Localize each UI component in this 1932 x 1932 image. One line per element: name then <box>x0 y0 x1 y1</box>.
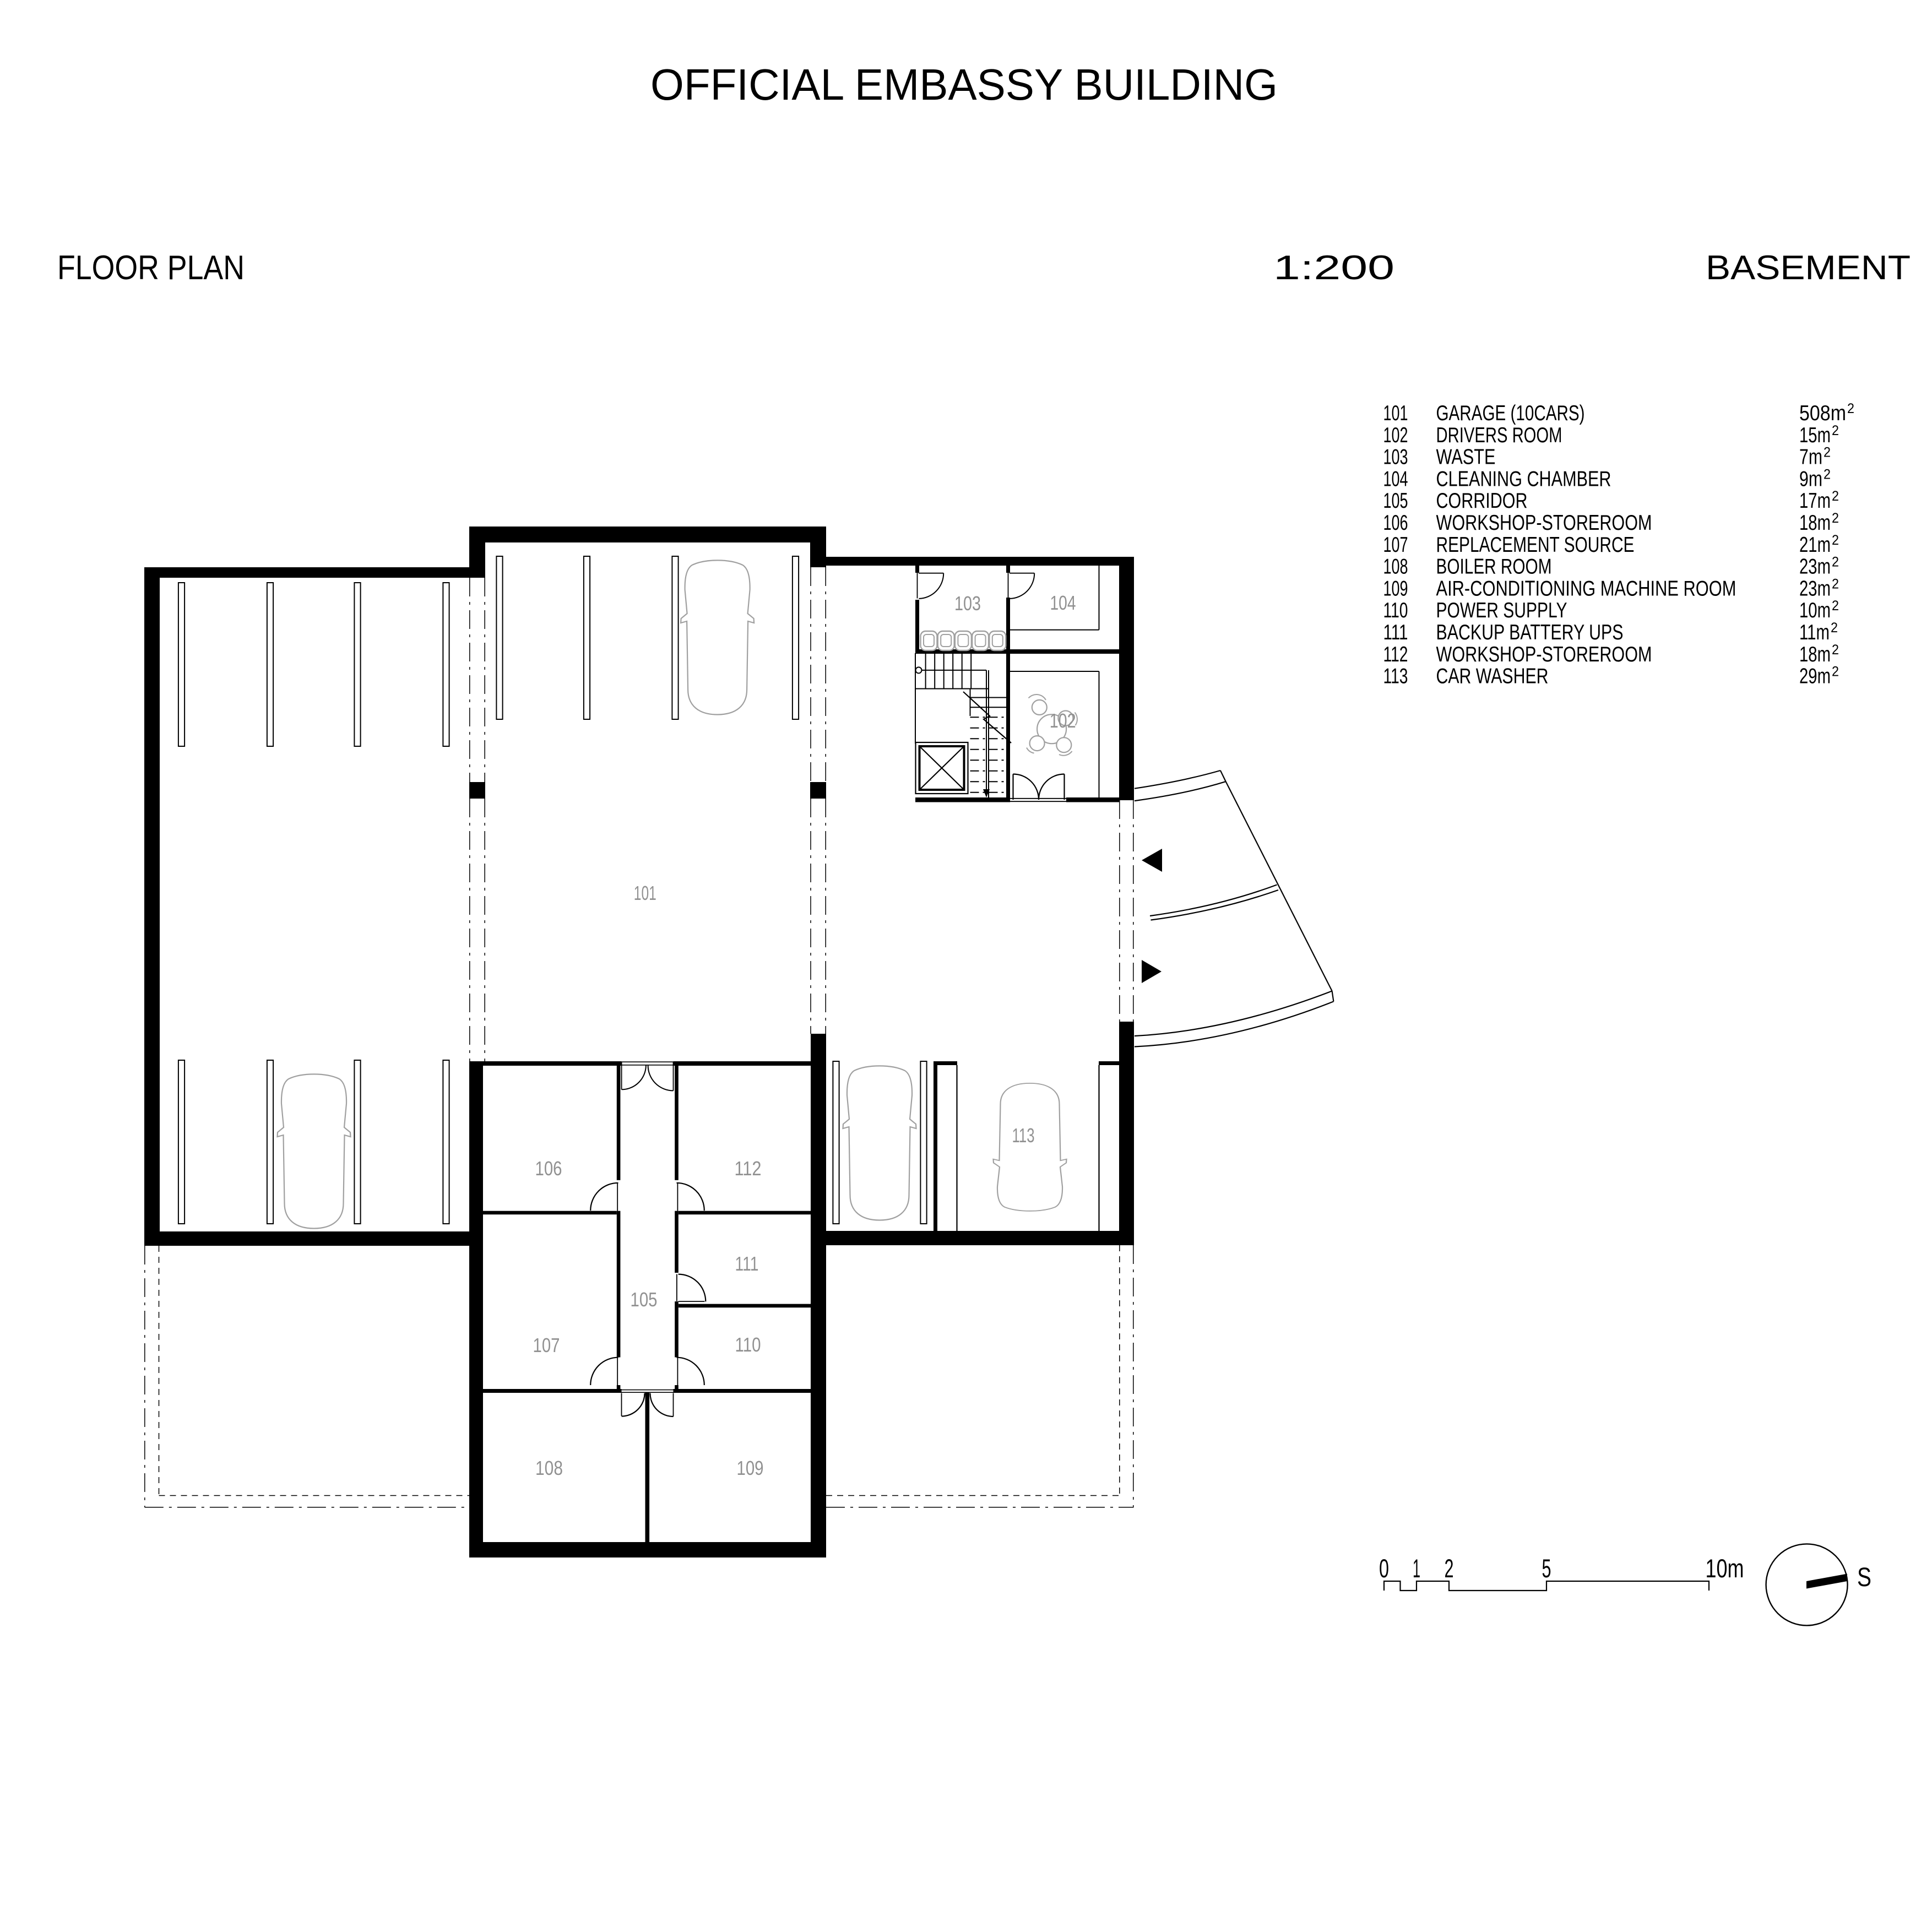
svg-text:111: 111 <box>735 1252 759 1275</box>
svg-text:DRIVERS ROOM: DRIVERS ROOM <box>1436 424 1562 447</box>
svg-text:18m: 18m <box>1799 643 1831 666</box>
svg-text:113: 113 <box>1383 665 1408 688</box>
svg-text:106: 106 <box>535 1157 562 1180</box>
svg-text:108: 108 <box>1383 555 1408 579</box>
svg-text:106: 106 <box>1383 511 1408 535</box>
svg-text:2: 2 <box>1832 664 1839 680</box>
svg-text:2: 2 <box>1832 642 1839 658</box>
svg-text:103: 103 <box>954 592 981 615</box>
svg-text:CAR WASHER: CAR WASHER <box>1436 665 1549 688</box>
svg-text:REPLACEMENT SOURCE: REPLACEMENT SOURCE <box>1436 533 1635 557</box>
svg-text:508m: 508m <box>1799 401 1846 425</box>
svg-text:23m: 23m <box>1799 555 1831 579</box>
svg-text:17m: 17m <box>1799 489 1831 513</box>
svg-text:2: 2 <box>1847 401 1854 416</box>
svg-text:105: 105 <box>631 1288 658 1311</box>
svg-text:101: 101 <box>634 882 656 904</box>
svg-text:BASEMENT: BASEMENT <box>1706 249 1911 287</box>
svg-text:1: 1 <box>1413 1554 1420 1583</box>
svg-text:OFFICIAL EMBASSY BUILDING: OFFICIAL EMBASSY BUILDING <box>650 60 1278 109</box>
svg-text:S: S <box>1857 1563 1871 1592</box>
svg-text:2: 2 <box>1445 1554 1454 1583</box>
svg-text:9m: 9m <box>1799 467 1822 491</box>
svg-text:CORRIDOR: CORRIDOR <box>1436 489 1528 513</box>
svg-text:BACKUP BATTERY UPS: BACKUP BATTERY UPS <box>1436 621 1624 644</box>
svg-text:2: 2 <box>1832 511 1839 526</box>
svg-text:102: 102 <box>1383 424 1408 447</box>
svg-text:BOILER ROOM: BOILER ROOM <box>1436 555 1552 579</box>
svg-text:WORKSHOP-STOREROOM: WORKSHOP-STOREROOM <box>1436 643 1652 666</box>
svg-text:CLEANING CHAMBER: CLEANING CHAMBER <box>1436 467 1611 491</box>
svg-text:15m: 15m <box>1799 424 1831 447</box>
svg-text:2: 2 <box>1824 445 1831 460</box>
svg-text:2: 2 <box>1832 423 1839 438</box>
svg-text:7m: 7m <box>1799 446 1822 469</box>
svg-text:AIR-CONDITIONING MACHINE ROOM: AIR-CONDITIONING MACHINE ROOM <box>1436 577 1736 600</box>
svg-text:110: 110 <box>1383 599 1408 622</box>
svg-text:2: 2 <box>1824 466 1831 482</box>
svg-text:2: 2 <box>1832 533 1839 548</box>
svg-text:10m: 10m <box>1799 599 1831 622</box>
svg-text:113: 113 <box>1012 1124 1035 1147</box>
svg-text:2: 2 <box>1832 576 1839 591</box>
svg-text:2: 2 <box>1832 598 1839 614</box>
svg-text:112: 112 <box>1383 643 1408 666</box>
svg-text:WORKSHOP-STOREROOM: WORKSHOP-STOREROOM <box>1436 511 1652 535</box>
svg-text:107: 107 <box>1383 533 1408 557</box>
svg-text:1:200: 1:200 <box>1273 249 1394 287</box>
svg-text:101: 101 <box>1383 401 1408 425</box>
svg-text:105: 105 <box>1383 489 1408 513</box>
svg-text:2: 2 <box>1831 620 1838 636</box>
svg-text:FLOOR PLAN: FLOOR PLAN <box>57 249 245 287</box>
svg-text:102: 102 <box>1050 709 1076 732</box>
svg-text:0: 0 <box>1379 1554 1389 1583</box>
svg-text:29m: 29m <box>1799 665 1831 688</box>
svg-text:111: 111 <box>1383 621 1408 644</box>
svg-text:WASTE: WASTE <box>1436 446 1496 469</box>
svg-text:109: 109 <box>1383 577 1408 600</box>
svg-text:5: 5 <box>1542 1554 1551 1583</box>
svg-text:107: 107 <box>533 1334 560 1356</box>
svg-text:2: 2 <box>1832 489 1839 504</box>
svg-text:103: 103 <box>1383 446 1408 469</box>
svg-text:GARAGE (10CARS): GARAGE (10CARS) <box>1436 401 1585 425</box>
svg-text:110: 110 <box>735 1333 761 1356</box>
svg-text:2: 2 <box>1832 555 1839 570</box>
svg-text:10m: 10m <box>1706 1554 1744 1583</box>
svg-text:18m: 18m <box>1799 511 1831 535</box>
svg-text:POWER SUPPLY: POWER SUPPLY <box>1436 599 1567 622</box>
svg-text:112: 112 <box>735 1157 762 1180</box>
svg-text:108: 108 <box>535 1457 563 1479</box>
svg-text:104: 104 <box>1383 467 1408 491</box>
svg-text:11m: 11m <box>1799 621 1830 644</box>
svg-text:109: 109 <box>737 1457 764 1479</box>
svg-text:21m: 21m <box>1799 533 1831 557</box>
svg-text:104: 104 <box>1050 591 1076 614</box>
svg-text:23m: 23m <box>1799 577 1831 600</box>
